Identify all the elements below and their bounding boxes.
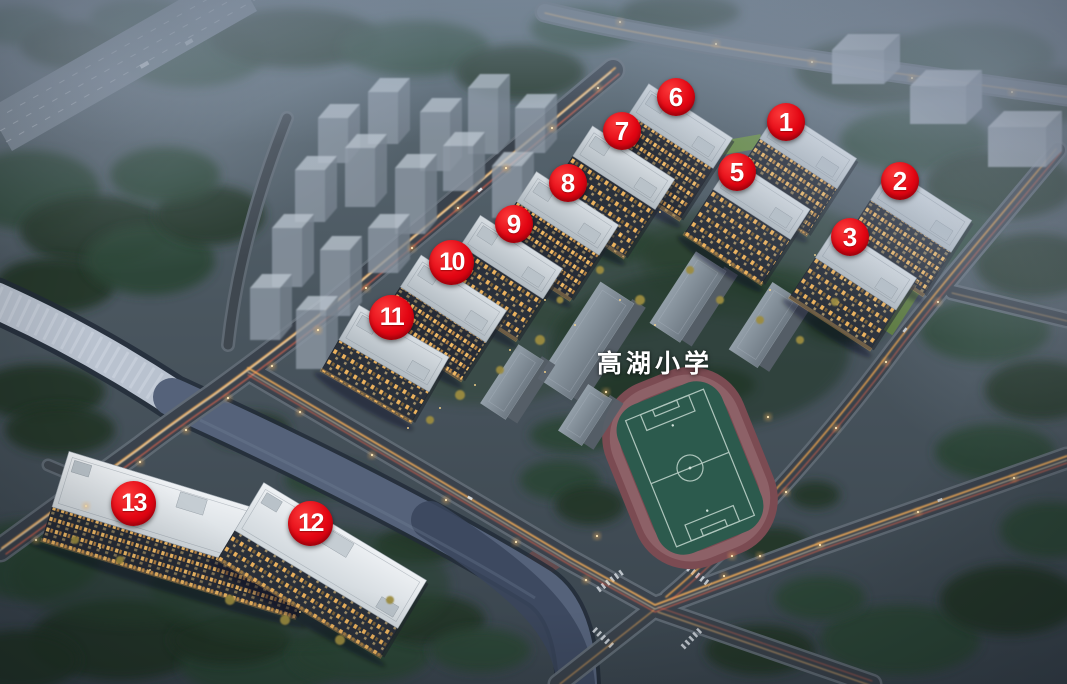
building-marker-13[interactable]: 13 <box>111 481 156 526</box>
building-marker-2[interactable]: 2 <box>881 162 919 200</box>
building-marker-10[interactable]: 10 <box>429 240 474 285</box>
building-marker-6[interactable]: 6 <box>657 78 695 116</box>
site-rendering <box>0 0 1067 684</box>
building-marker-12[interactable]: 12 <box>288 501 333 546</box>
building-marker-9[interactable]: 9 <box>495 205 533 243</box>
school-label: 高湖小学 <box>597 344 713 380</box>
building-marker-1[interactable]: 1 <box>767 103 805 141</box>
aerial-site-plan: 1 2 3 5 6 7 8 9 10 11 12 13 高湖小学 <box>0 0 1067 684</box>
building-marker-5[interactable]: 5 <box>718 153 756 191</box>
building-marker-8[interactable]: 8 <box>549 164 587 202</box>
building-marker-3[interactable]: 3 <box>831 218 869 256</box>
building-marker-7[interactable]: 7 <box>603 112 641 150</box>
atmospheric-haze <box>0 0 1067 684</box>
building-marker-11[interactable]: 11 <box>369 295 414 340</box>
